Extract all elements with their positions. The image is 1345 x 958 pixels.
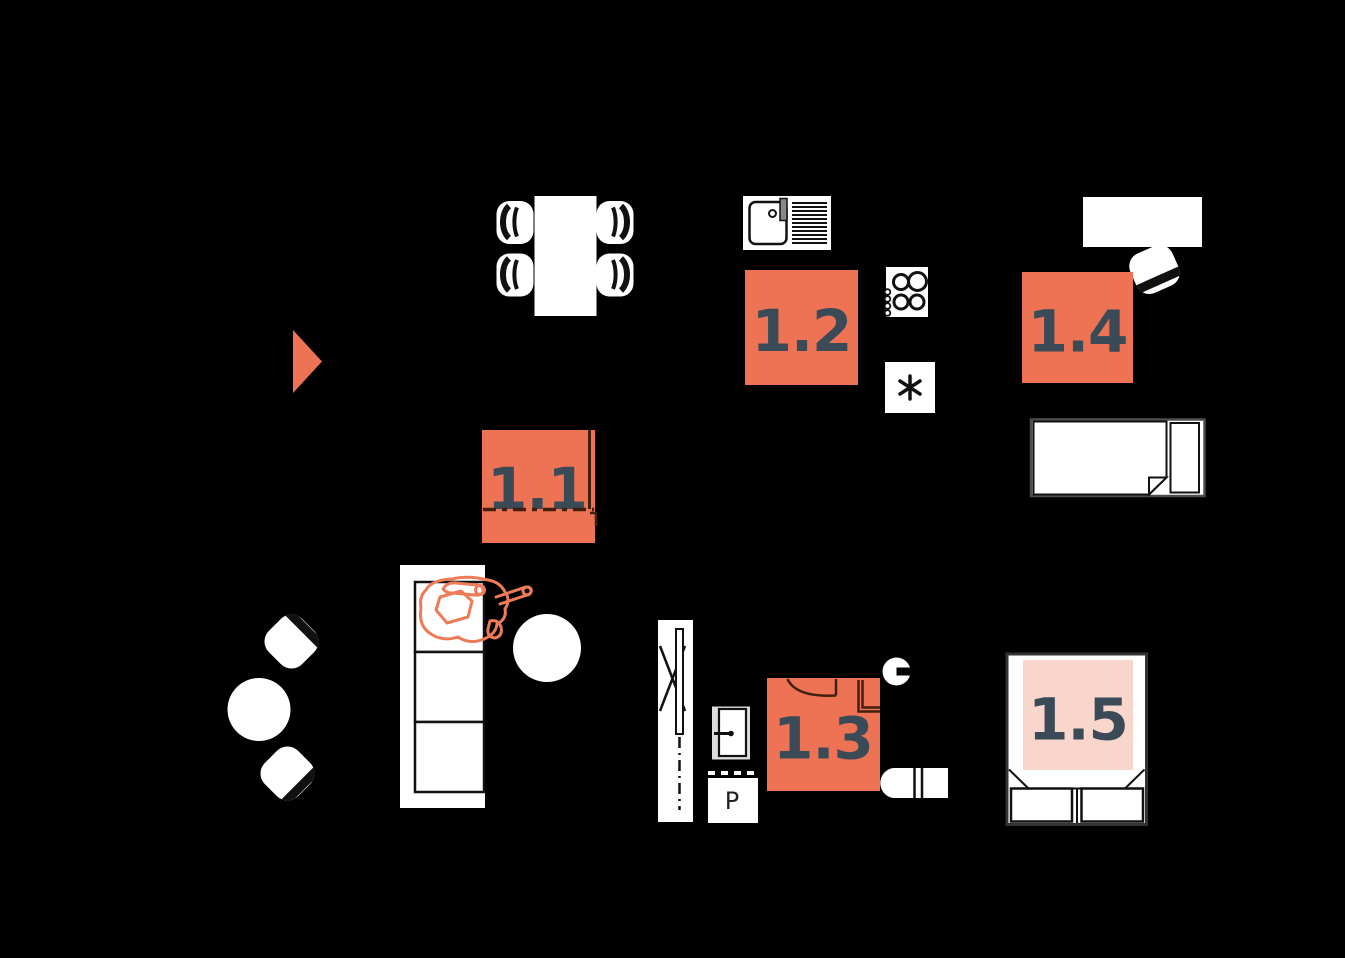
desk-icon (1083, 197, 1202, 247)
wardrobe-icon (658, 620, 693, 822)
pillow (1082, 789, 1144, 822)
pillow (1011, 789, 1072, 822)
room-label-1-2[interactable]: 1.2 (745, 270, 858, 385)
pillow (1171, 423, 1200, 493)
pantry-label: P (725, 787, 739, 815)
coffee-table-icon (513, 614, 581, 682)
double-bed-icon: 1.5 (1007, 654, 1147, 825)
bistro-table-top (228, 678, 291, 741)
dining-chair-icon (497, 254, 534, 297)
room-label-1-3[interactable]: 1.3 (767, 678, 880, 791)
room-number: 1.3 (773, 705, 873, 773)
interior-door-icon (712, 707, 750, 760)
table-top (535, 196, 597, 316)
room-label-1-4[interactable]: 1.4 (1022, 272, 1133, 383)
fridge-icon (885, 362, 935, 413)
pantry-box[interactable]: P (708, 773, 758, 823)
dining-chair-icon (597, 201, 634, 244)
single-bed-icon (1031, 420, 1205, 497)
room-label-1-1[interactable]: 1.1 (482, 430, 596, 543)
floor-plan-svg: 1.2 1.4 1.1 (0, 0, 1345, 958)
room-label-1-5[interactable]: 1.5 (1023, 660, 1133, 770)
room-number: 1.4 (1028, 298, 1128, 366)
room-number: 1.2 (752, 297, 852, 365)
toilet-icon (880, 768, 948, 798)
hob-icon (885, 267, 928, 317)
room-number: 1.5 (1028, 686, 1128, 754)
dining-chair-icon (597, 254, 634, 297)
kitchen-sink-icon (743, 196, 831, 250)
dining-chair-icon (497, 201, 534, 244)
floor-plan-canvas: 1.2 1.4 1.1 (0, 0, 1345, 958)
room-number: 1.1 (487, 455, 587, 523)
